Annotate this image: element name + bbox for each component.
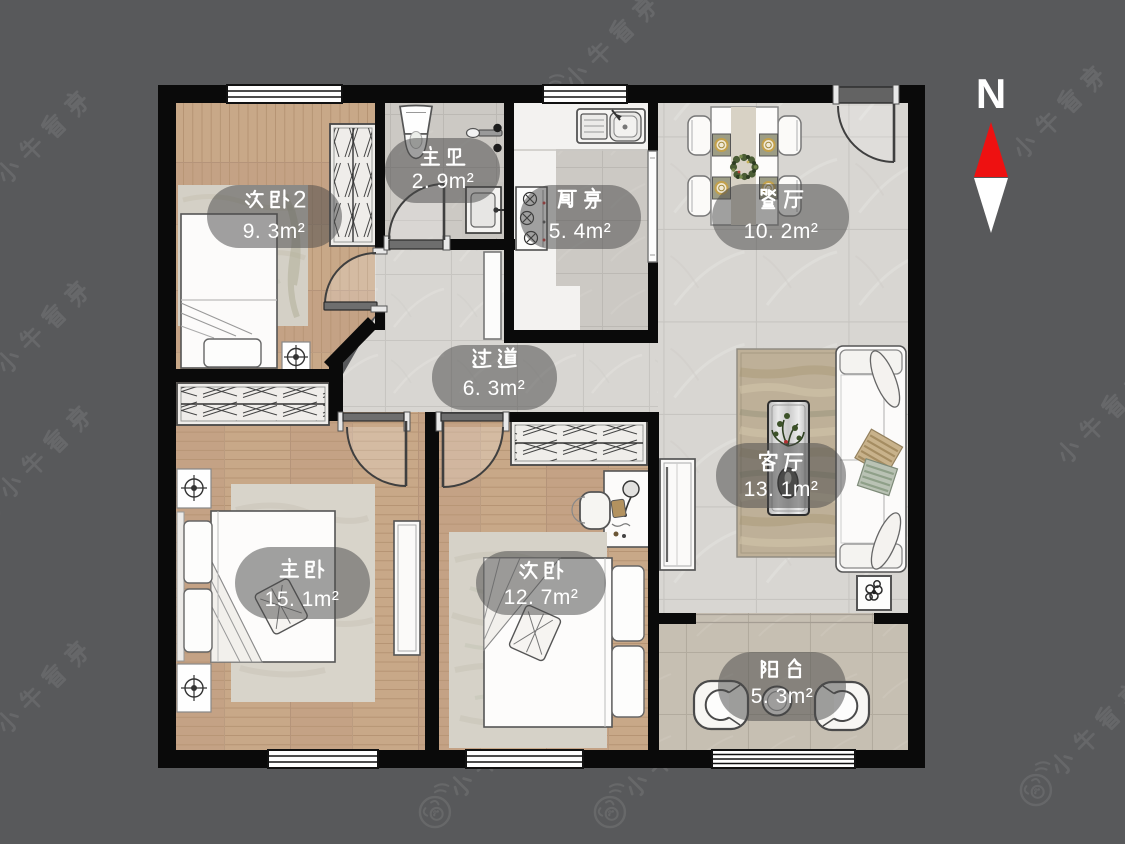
svg-text:12. 7m²: 12. 7m² (504, 586, 579, 609)
svg-text:10. 2m²: 10. 2m² (744, 220, 819, 243)
svg-text:9. 3m²: 9. 3m² (243, 220, 306, 243)
svg-text:15. 1m²: 15. 1m² (265, 588, 340, 611)
svg-text:6. 3m²: 6. 3m² (463, 377, 526, 400)
svg-text:13. 1m²: 13. 1m² (744, 478, 819, 501)
svg-text:2. 9m²: 2. 9m² (412, 170, 475, 193)
svg-text:2: 2 (293, 186, 306, 213)
svg-text:5. 4m²: 5. 4m² (549, 220, 612, 243)
svg-text:5. 3m²: 5. 3m² (751, 685, 814, 708)
svg-text:N: N (976, 70, 1006, 117)
